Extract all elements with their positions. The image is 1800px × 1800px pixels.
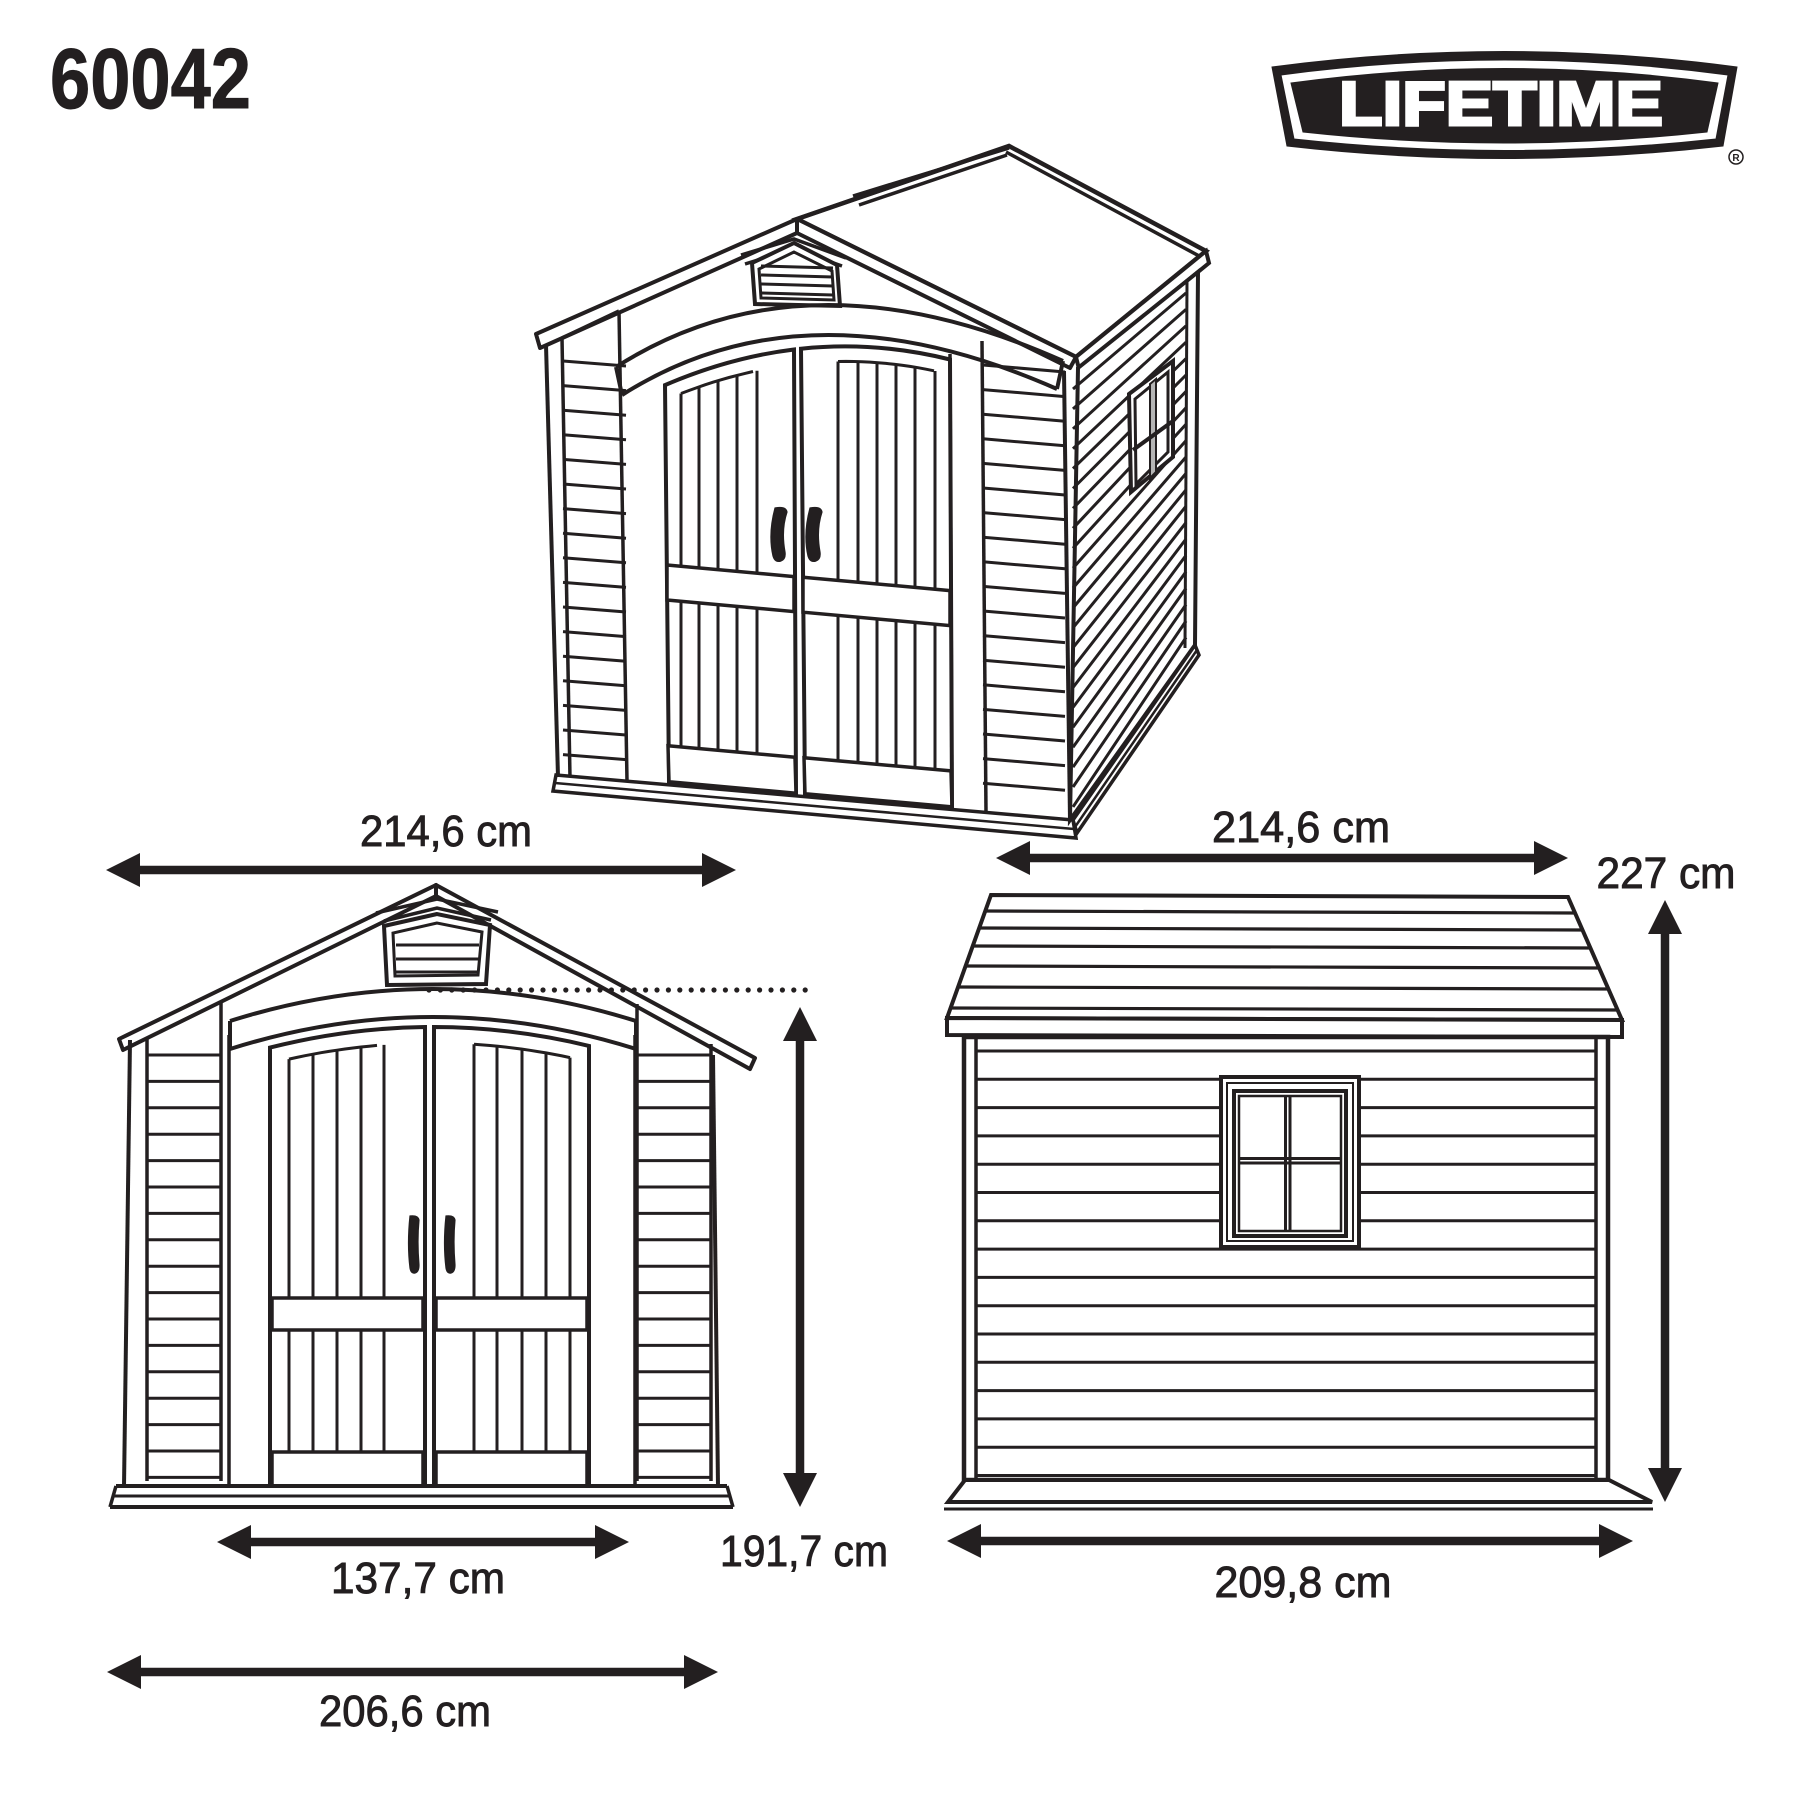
svg-text:214,6 cm: 214,6 cm xyxy=(1212,803,1390,852)
svg-text:227 cm: 227 cm xyxy=(1597,849,1736,898)
svg-text:214,6 cm: 214,6 cm xyxy=(360,807,532,856)
svg-text:LIFETIME: LIFETIME xyxy=(1339,70,1663,139)
svg-text:R: R xyxy=(1732,153,1740,164)
svg-text:137,7 cm: 137,7 cm xyxy=(331,1554,505,1603)
svg-text:206,6 cm: 206,6 cm xyxy=(319,1687,491,1736)
svg-text:191,7 cm: 191,7 cm xyxy=(720,1527,888,1576)
svg-text:209,8 cm: 209,8 cm xyxy=(1215,1558,1392,1607)
svg-text:60042: 60042 xyxy=(50,32,251,127)
